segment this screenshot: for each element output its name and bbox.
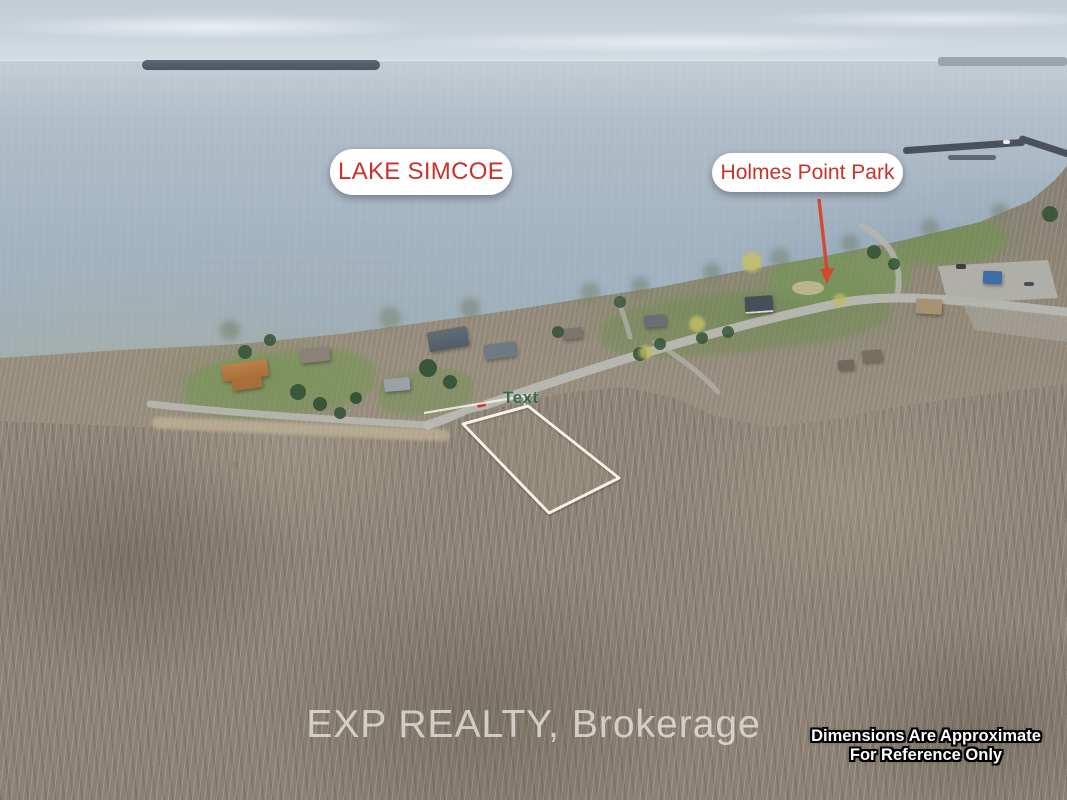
park-label-pill: Holmes Point Park [712,153,903,192]
property-boundary-outline [463,406,619,513]
pointer-arrow-head [820,268,834,284]
lake-label-pill: LAKE SIMCOE [330,149,512,195]
disclaimer-line-1: Dimensions Are Approximate [810,727,1042,746]
aerial-photo: Text LAKE SIMCOE Holmes Point Park EXP R… [0,0,1067,800]
lake-label-text: LAKE SIMCOE [338,158,504,186]
pointer-arrow-shaft [819,199,827,271]
lot-text-label: Text [503,388,539,408]
disclaimer-box: Dimensions Are Approximate For Reference… [810,727,1042,765]
disclaimer-line-2: For Reference Only [810,746,1042,765]
park-label-text: Holmes Point Park [721,161,895,185]
